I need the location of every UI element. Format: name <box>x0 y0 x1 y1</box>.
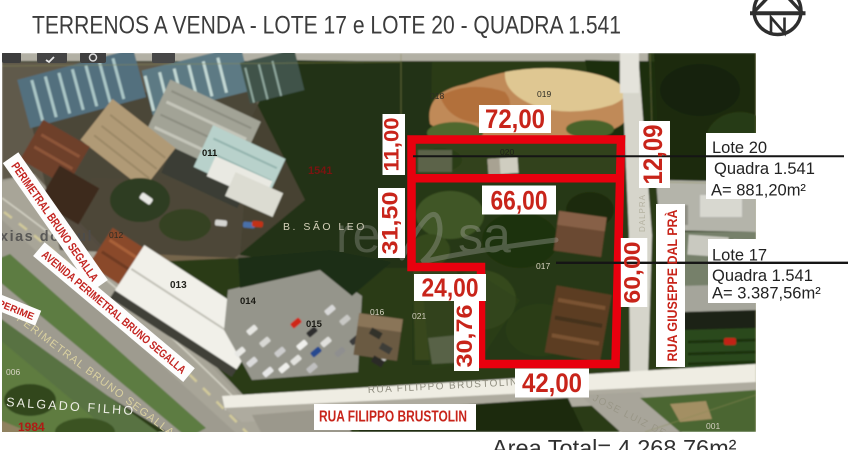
svg-text:72,00: 72,00 <box>485 104 545 134</box>
svg-text:021: 021 <box>412 311 426 321</box>
svg-text:017: 017 <box>536 261 550 271</box>
svg-text:018: 018 <box>430 91 444 101</box>
svg-text:12,09: 12,09 <box>638 125 668 185</box>
svg-text:24,00: 24,00 <box>422 273 479 303</box>
svg-text:A= 3.387,56m²: A= 3.387,56m² <box>712 285 821 303</box>
svg-text:014: 014 <box>240 296 257 307</box>
svg-text:RUA FILIPPO BRUSTOLIN: RUA FILIPPO BRUSTOLIN <box>319 409 467 426</box>
svg-text:60,00: 60,00 <box>619 242 645 304</box>
svg-text:11,00: 11,00 <box>381 118 404 172</box>
svg-text:012: 012 <box>109 230 123 240</box>
svg-text:Lote 20: Lote 20 <box>712 139 767 157</box>
svg-text:006: 006 <box>6 367 20 377</box>
svg-text:019: 019 <box>537 89 551 99</box>
svg-text:30,76: 30,76 <box>452 305 477 368</box>
svg-text:Quadra 1.541: Quadra 1.541 <box>714 160 815 178</box>
svg-text:1984: 1984 <box>18 420 45 434</box>
svg-text:DALPRA: DALPRA <box>638 194 647 232</box>
svg-text:31,50: 31,50 <box>377 192 402 255</box>
svg-text:Lote 17: Lote 17 <box>712 247 767 265</box>
svg-text:42,00: 42,00 <box>522 368 582 398</box>
svg-text:Quadra 1.541: Quadra 1.541 <box>712 267 813 285</box>
svg-text:RUA GIUSEPPE DAL PRÀ: RUA GIUSEPPE DAL PRÀ <box>665 209 680 361</box>
svg-text:015: 015 <box>306 319 323 330</box>
svg-text:66,00: 66,00 <box>491 186 548 216</box>
svg-text:TERRENOS A VENDA - LOTE 17 e L: TERRENOS A VENDA - LOTE 17 e LOTE 20 - Q… <box>32 12 621 40</box>
svg-text:013: 013 <box>170 280 187 291</box>
svg-text:011: 011 <box>202 148 218 159</box>
svg-text:A= 881,20m²: A= 881,20m² <box>711 182 806 200</box>
svg-text:Area Total= 4.268,76m²: Area Total= 4.268,76m² <box>492 435 737 450</box>
svg-text:016: 016 <box>370 307 384 317</box>
svg-text:001: 001 <box>706 421 720 431</box>
svg-text:1541: 1541 <box>308 165 332 177</box>
